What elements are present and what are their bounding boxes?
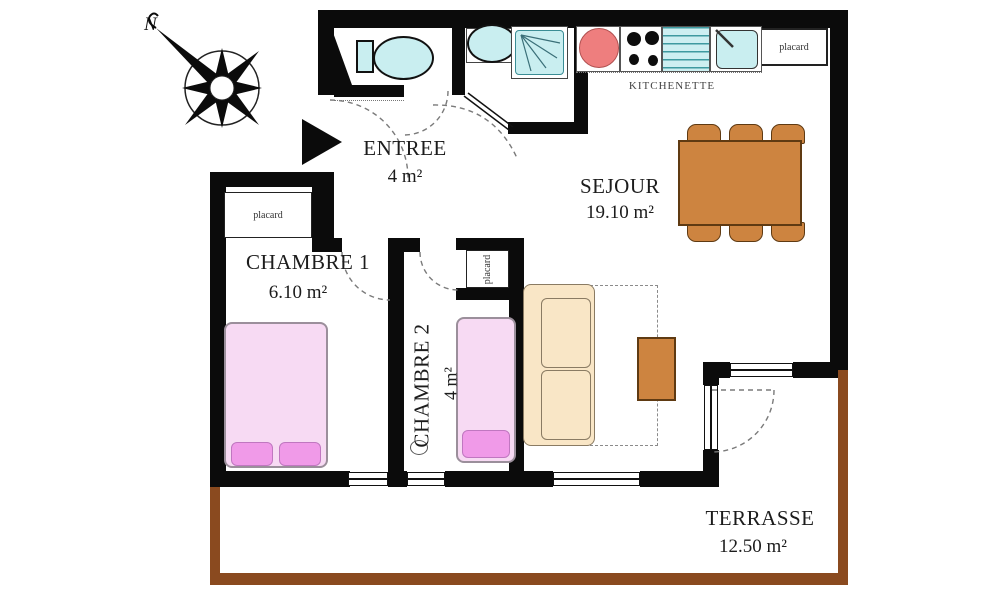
room-label-chambre1: CHAMBRE 1	[228, 250, 388, 275]
room-label-terrasse: TERRASSE	[690, 506, 830, 531]
room-area-sejour: 19.10 m²	[553, 202, 687, 224]
compass-north-label: N	[143, 14, 158, 35]
room-label-entree: ENTREE	[340, 136, 470, 161]
door-swing-terrace	[712, 390, 774, 452]
faucet-icon	[716, 30, 733, 47]
door-swing-chambre2	[420, 252, 458, 290]
shower-spray-lines	[521, 35, 560, 71]
room-area-chambre2: 4 m²	[441, 354, 462, 414]
room-label-chambre2: CHAMBRE 2	[410, 301, 435, 471]
room-label-sejour: SEJOUR	[553, 174, 687, 199]
floor-plan: placard placard placard	[0, 0, 1000, 602]
entrance-arrow-icon	[302, 119, 342, 165]
door-swing-wc	[404, 91, 448, 135]
room-area-terrasse: 12.50 m²	[683, 536, 823, 558]
plan-overlay: N	[0, 0, 1000, 602]
room-area-chambre1: 6.10 m²	[218, 282, 378, 304]
room-label-kitchenette: KITCHENETTE	[612, 80, 732, 92]
room-area-entree: 4 m²	[340, 166, 470, 188]
compass-rose: N	[143, 14, 262, 129]
wc-triangle	[331, 27, 352, 85]
